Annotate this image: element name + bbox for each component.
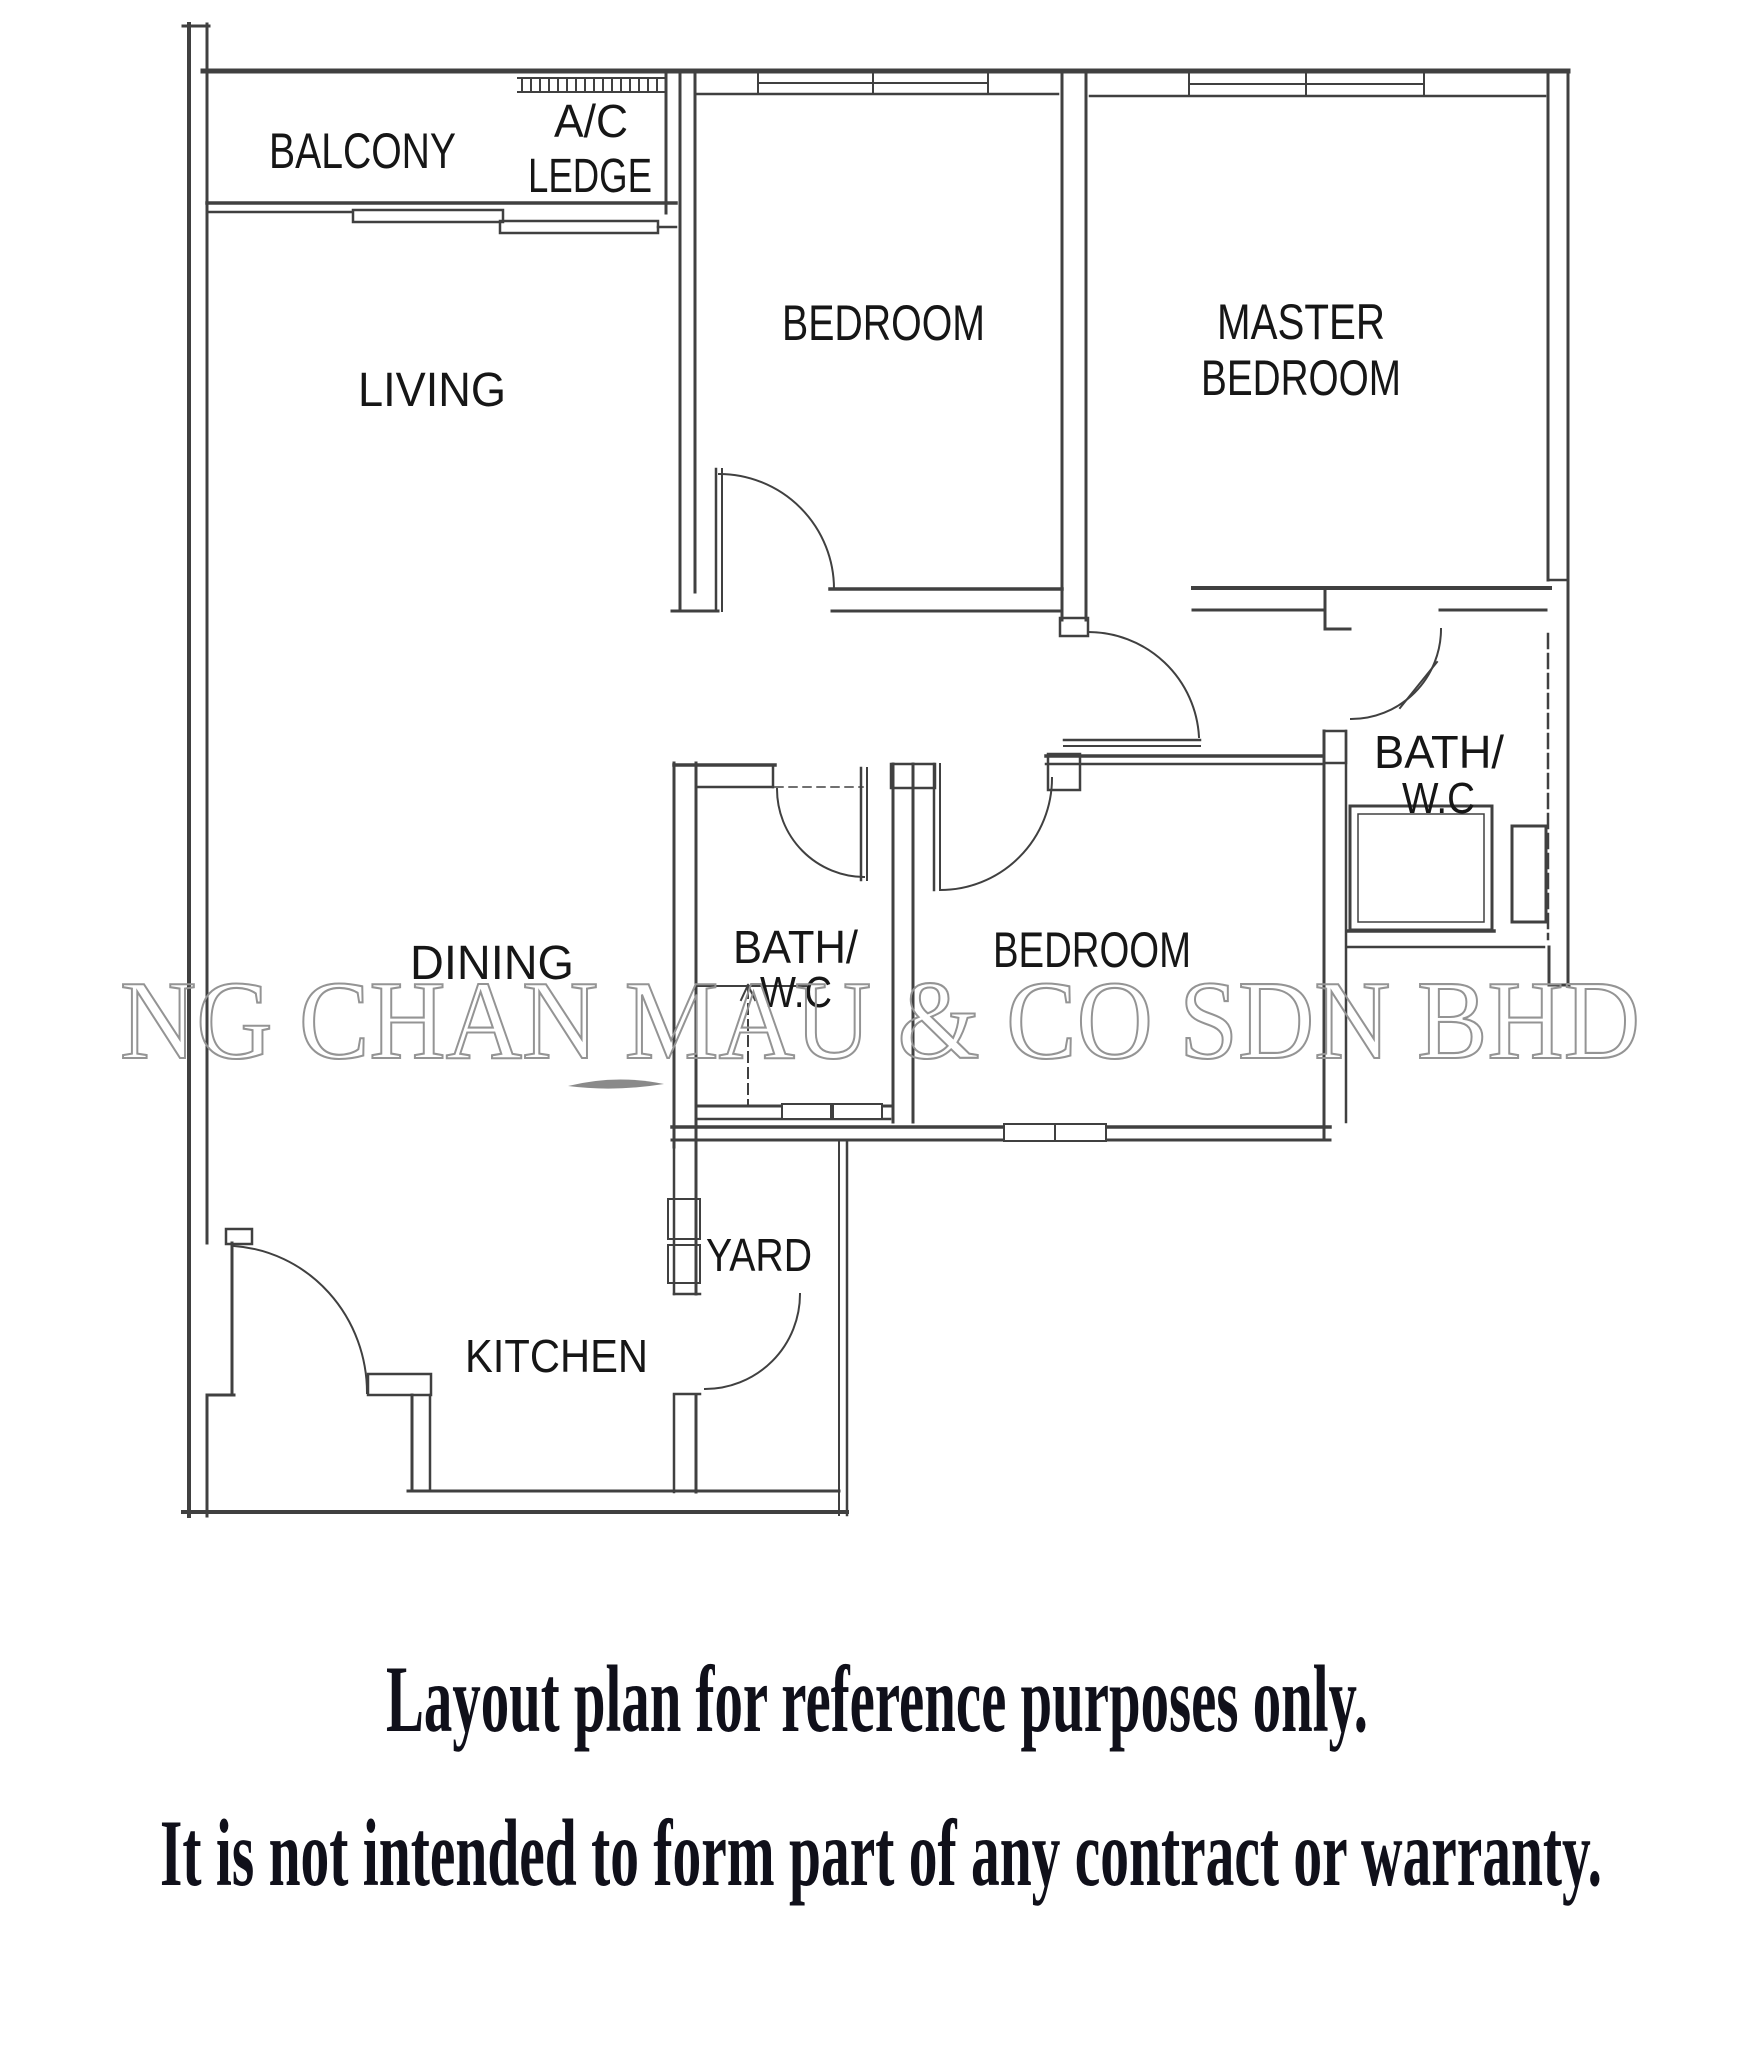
svg-text:YARD: YARD [706, 1229, 812, 1281]
svg-text:KITCHEN: KITCHEN [465, 1330, 648, 1382]
svg-text:LEDGE: LEDGE [528, 150, 652, 203]
svg-text:LIVING: LIVING [358, 364, 506, 417]
svg-text:Layout plan for reference purp: Layout plan for reference purposes only. [386, 1646, 1368, 1752]
svg-text:NG CHAN MAU & CO SDN BHD: NG CHAN MAU & CO SDN BHD [120, 959, 1640, 1083]
svg-text:BEDROOM: BEDROOM [1201, 350, 1401, 406]
svg-text:BEDROOM: BEDROOM [782, 295, 985, 351]
svg-text:BATH/: BATH/ [1374, 726, 1504, 778]
svg-text:MASTER: MASTER [1217, 294, 1385, 350]
svg-text:BALCONY: BALCONY [269, 123, 456, 179]
svg-text:W.C: W.C [1402, 774, 1475, 823]
svg-text:It is not intended to form par: It is not intended to form part of any c… [160, 1800, 1602, 1906]
svg-text:A/C: A/C [554, 95, 628, 147]
